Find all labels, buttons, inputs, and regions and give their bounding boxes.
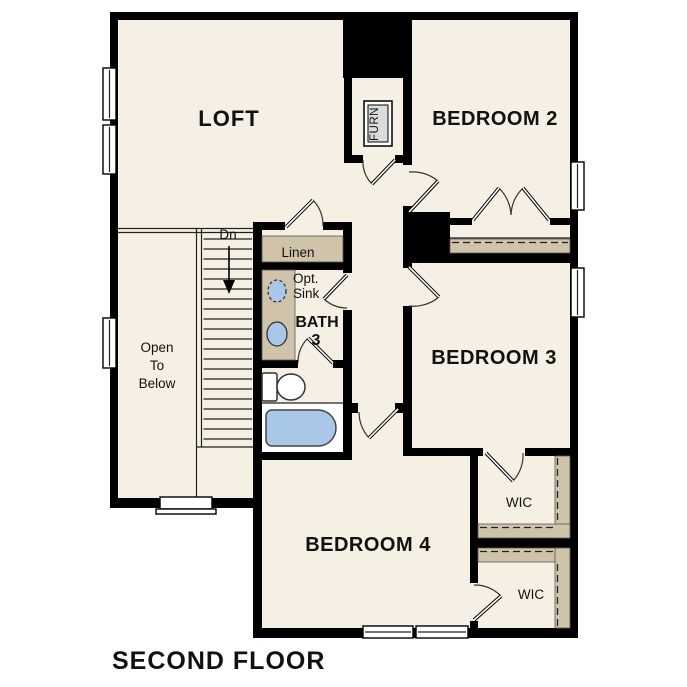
window-open-below (103, 318, 116, 368)
optional-sink (268, 280, 286, 302)
bath-label-line2: 3 (312, 332, 321, 349)
bath-label-line1: BATH (295, 314, 338, 331)
open-below-label-line3: Below (139, 376, 176, 391)
stairs-down-label: Dn (219, 227, 236, 242)
wic-top-shelf-bottom (478, 524, 570, 538)
bedroom2-closet-shelf (450, 239, 570, 253)
window-loft-lower (103, 125, 116, 174)
bedroom3-label: BEDROOM 3 (431, 347, 557, 369)
window-bedroom2 (571, 162, 584, 210)
toilet-bowl (277, 374, 305, 400)
floor-plan-drawing: LOFT BEDROOM 2 BEDROOM 3 BEDROOM 4 BATH … (0, 0, 687, 687)
wic-bottom-label: WIC (518, 587, 544, 602)
window-bedroom4-left (363, 626, 413, 638)
stair-treads (204, 239, 253, 439)
floor-plan-page: LOFT BEDROOM 2 BEDROOM 3 BEDROOM 4 BATH … (0, 0, 687, 687)
window-bedroom3 (571, 268, 584, 317)
bedroom4-label: BEDROOM 4 (305, 534, 431, 556)
chase-block-closet (403, 212, 450, 260)
opt-sink-label-line2: Sink (293, 286, 320, 301)
linen-label: Linen (281, 245, 314, 260)
window-stair-landing (156, 497, 216, 514)
bedroom2-label: BEDROOM 2 (432, 108, 558, 130)
opt-sink-label-line1: Opt. (293, 271, 319, 286)
sink (267, 322, 287, 346)
plan-title: SECOND FLOOR (112, 647, 325, 675)
bathtub (266, 410, 336, 446)
open-below-label-line2: To (150, 358, 164, 373)
loft-label: LOFT (198, 106, 259, 131)
furnace-label: FURN (369, 107, 381, 141)
toilet-tank (262, 373, 277, 401)
window-bedroom4-right (416, 626, 468, 638)
chase-block-top (343, 12, 410, 78)
window-loft-upper (103, 68, 116, 120)
wic-top-label: WIC (506, 495, 532, 510)
open-below-label-line1: Open (140, 340, 173, 355)
